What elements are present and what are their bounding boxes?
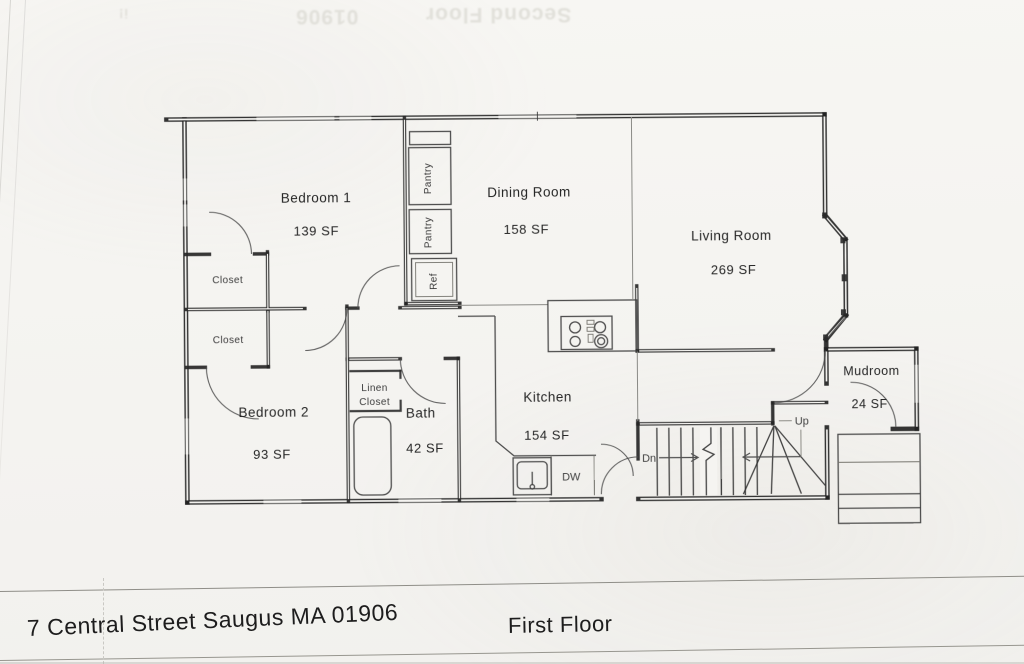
room-name-kitchen: Kitchen	[523, 389, 572, 404]
closet1-door-arc	[209, 212, 251, 254]
storm-door-arc	[601, 444, 633, 476]
room-name-living-room: Living Room	[691, 228, 772, 244]
stairs-up-label: Up	[795, 416, 809, 428]
staircase	[657, 420, 826, 495]
stairs-down-label: Dn	[642, 453, 656, 465]
room-name-bedroom-1: Bedroom 1	[281, 190, 352, 206]
living-room-landing-door-arc	[773, 350, 825, 402]
room-area-living-room: 269 SF	[711, 262, 757, 277]
exterior-steps	[838, 434, 921, 524]
burner	[570, 322, 581, 333]
room-area-bath: 42 SF	[406, 440, 444, 455]
faucet	[530, 485, 534, 489]
burner	[595, 322, 606, 333]
closet-label-2: Closet	[213, 335, 244, 346]
room-area-bedroom-1: 139 SF	[293, 223, 339, 238]
burner	[570, 336, 580, 346]
bedroom1-door-arc	[358, 266, 400, 308]
pantry-label-2: Pantry	[423, 217, 434, 248]
bath-door-arc	[400, 358, 445, 403]
floor-plan-drawing: Bedroom 1 139 SF Dining Room 158 SF Livi…	[0, 0, 1024, 664]
down-arrow	[659, 453, 698, 461]
interior-walls	[184, 114, 827, 502]
room-name-bedroom-2: Bedroom 2	[238, 405, 309, 421]
refrigerator-label: Ref	[429, 273, 440, 290]
linen-closet-label-line1: Linen	[361, 383, 388, 394]
room-area-bedroom-2: 93 SF	[253, 447, 291, 462]
bathtub	[354, 417, 392, 495]
dishwasher-label: DW	[562, 471, 581, 483]
bedroom2-door-arc	[305, 308, 347, 350]
closet-label-1: Closet	[212, 275, 243, 286]
room-name-bath: Bath	[406, 406, 436, 421]
room-name-dining-room: Dining Room	[487, 184, 571, 200]
burner	[595, 335, 608, 348]
floor-title: First Floor	[508, 611, 613, 639]
winder-treads	[743, 425, 826, 494]
pantry-label-1: Pantry	[423, 163, 434, 194]
fixture-labels: Pantry Pantry Ref DW Dn Up	[423, 160, 810, 485]
bath-fixtures	[354, 417, 392, 495]
linen-closet-label-line2: Closet	[359, 397, 390, 408]
room-name-mudroom: Mudroom	[843, 364, 899, 378]
room-area-kitchen: 154 SF	[524, 427, 570, 442]
room-divider-lines	[458, 117, 637, 422]
room-area-dining-room: 158 SF	[503, 222, 549, 237]
closet-labels: Closet Closet Linen Closet	[212, 274, 390, 409]
room-area-mudroom: 24 SF	[851, 397, 887, 411]
